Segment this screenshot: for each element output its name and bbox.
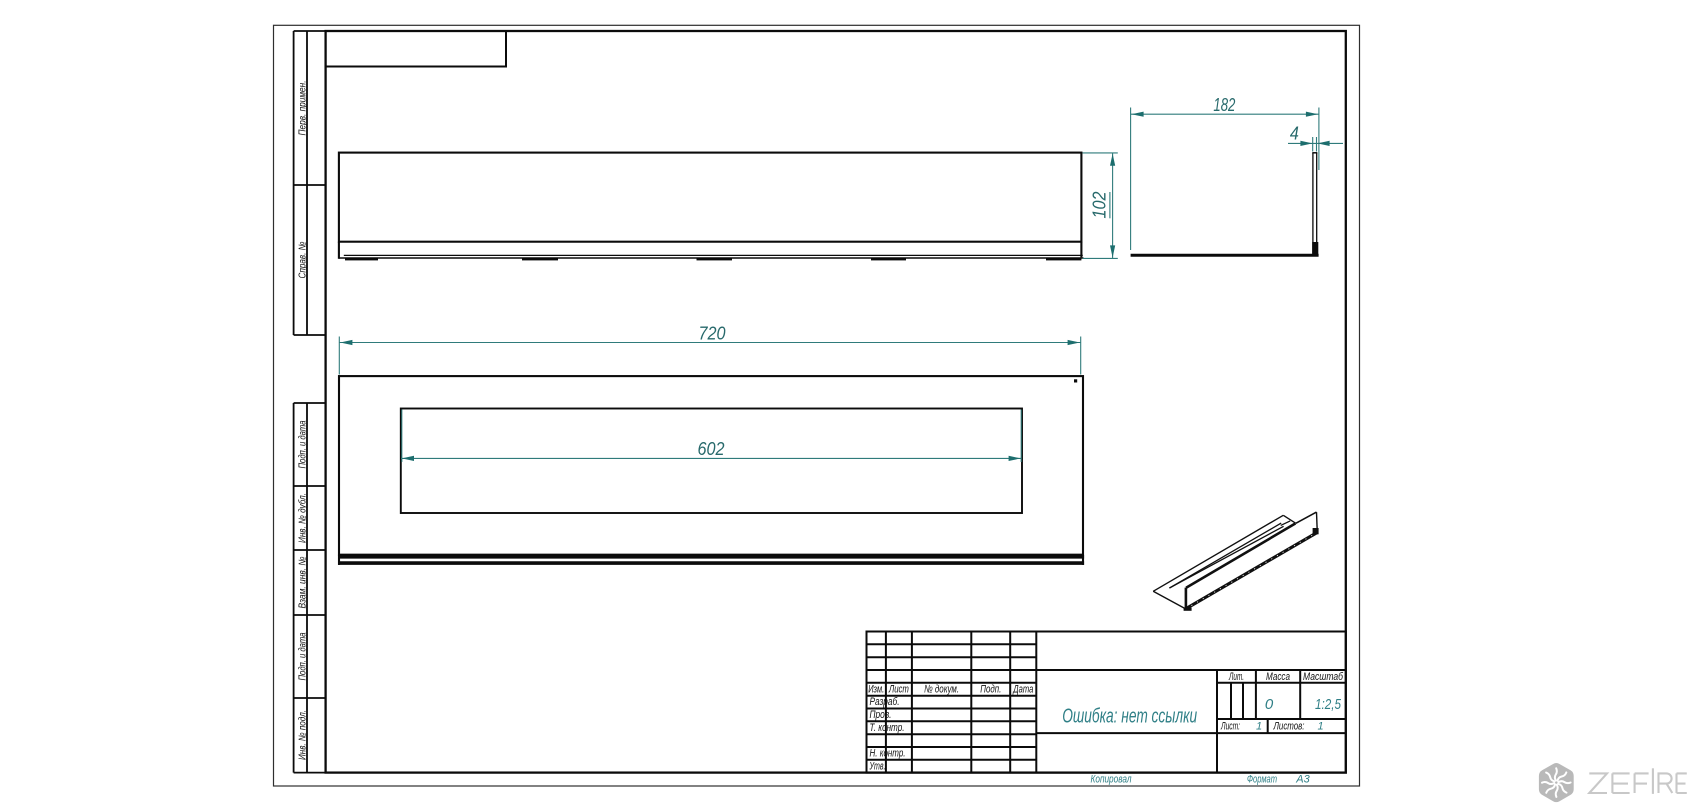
- svg-text:Масса: Масса: [1266, 671, 1290, 683]
- svg-text:Т. контр.: Т. контр.: [870, 722, 905, 734]
- svg-text:Утв.: Утв.: [869, 760, 886, 772]
- svg-text:Копировал: Копировал: [1091, 774, 1132, 786]
- svg-text:Лит.: Лит.: [1228, 671, 1244, 683]
- svg-text:1:2,5: 1:2,5: [1315, 696, 1342, 713]
- svg-text:Подп. и дата: Подп. и дата: [298, 632, 309, 680]
- svg-text:0: 0: [1265, 696, 1274, 713]
- svg-text:Лист:: Лист:: [1220, 721, 1240, 733]
- svg-text:4: 4: [1290, 123, 1299, 144]
- svg-text:Лист: Лист: [888, 683, 909, 695]
- svg-text:Перв. примен.: Перв. примен.: [298, 81, 309, 136]
- svg-text:Н. контр.: Н. контр.: [870, 748, 906, 760]
- svg-text:602: 602: [698, 438, 726, 459]
- svg-text:Масштаб: Масштаб: [1303, 671, 1344, 683]
- svg-text:Пров.: Пров.: [870, 709, 892, 721]
- svg-text:Инв. № подл.: Инв. № подл.: [298, 710, 309, 760]
- svg-text:Изм.: Изм.: [868, 683, 884, 695]
- svg-text:1: 1: [1256, 721, 1262, 733]
- svg-text:720: 720: [699, 322, 727, 343]
- svg-text:Разраб.: Разраб.: [870, 696, 900, 708]
- svg-text:Ошибка: нет ссылки: Ошибка: нет ссылки: [1062, 706, 1197, 728]
- svg-text:Подп.: Подп.: [980, 683, 1001, 695]
- svg-text:1: 1: [1318, 721, 1324, 733]
- svg-text:182: 182: [1213, 94, 1236, 115]
- svg-text:Справ. №: Справ. №: [298, 241, 309, 278]
- svg-text:Взам. инв. №: Взам. инв. №: [298, 556, 309, 608]
- svg-text:Формат: Формат: [1247, 774, 1277, 786]
- svg-text:Листов:: Листов:: [1273, 721, 1305, 733]
- svg-text:Дата: Дата: [1012, 683, 1033, 695]
- svg-text:№ докум.: № докум.: [924, 683, 959, 695]
- svg-text:Подп. и дата: Подп. и дата: [298, 420, 309, 468]
- svg-text:Инв. № дубл.: Инв. № дубл.: [297, 493, 309, 543]
- svg-text:А3: А3: [1295, 774, 1310, 786]
- svg-text:102: 102: [1089, 191, 1110, 219]
